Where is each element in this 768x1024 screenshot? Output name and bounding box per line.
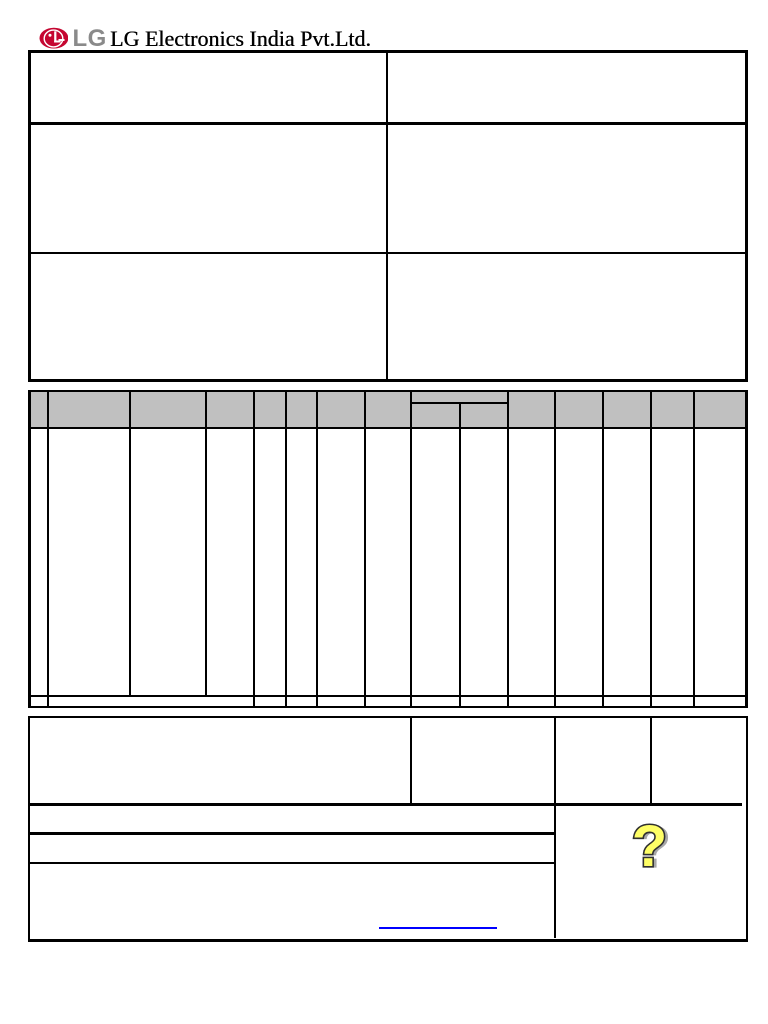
svg-text:?: ?	[632, 819, 667, 879]
